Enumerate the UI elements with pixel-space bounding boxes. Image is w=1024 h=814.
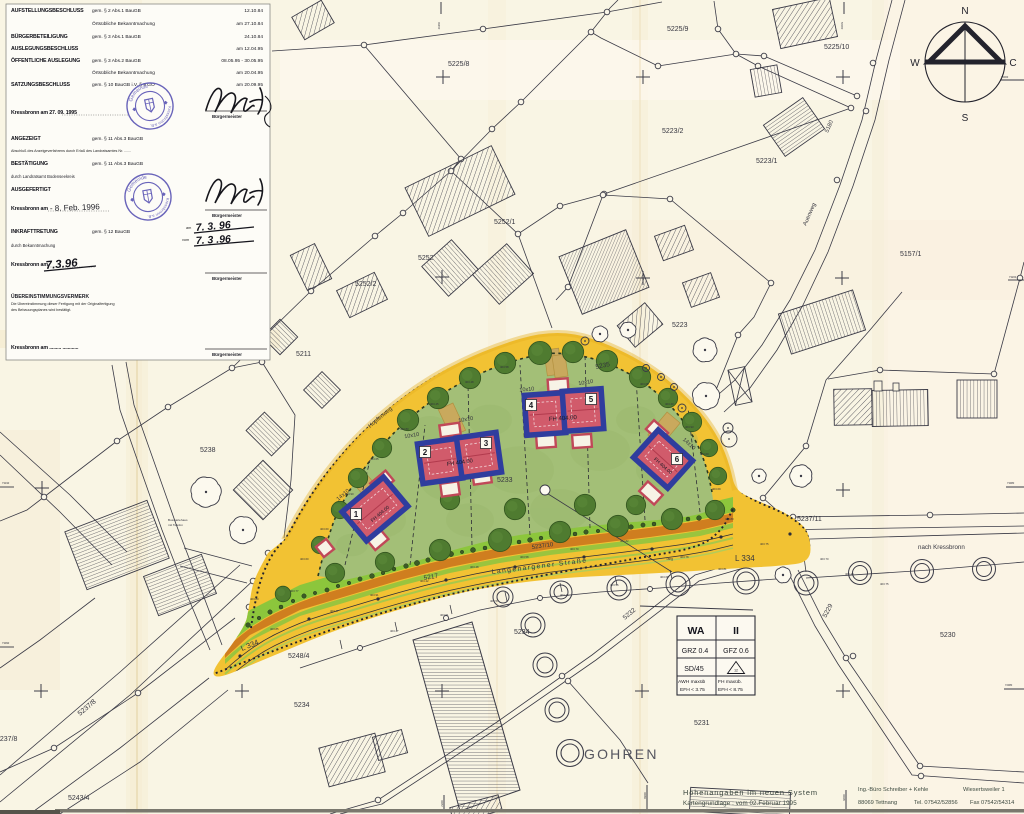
svg-text:N: N <box>961 6 968 17</box>
svg-text:5223/2: 5223/2 <box>662 128 684 135</box>
svg-text:403.82: 403.82 <box>620 539 629 543</box>
svg-text:403.48: 403.48 <box>470 565 479 569</box>
svg-text:Kressbronn am ......... .....: Kressbronn am ......... ............ <box>11 345 79 351</box>
svg-text:403.68: 403.68 <box>660 575 669 579</box>
svg-text:S: S <box>962 113 969 124</box>
svg-text:403.60: 403.60 <box>300 557 309 561</box>
svg-text:AWH maxüb: AWH maxüb <box>678 679 706 685</box>
svg-text:5231: 5231 <box>694 720 710 727</box>
svg-text:Abschluß des Anzeigeverfahrens: Abschluß des Anzeigeverfahrens durch Erl… <box>11 149 131 153</box>
svg-text:AUSLEGUNGSBESCHLUSS: AUSLEGUNGSBESCHLUSS <box>11 46 79 52</box>
svg-text:GOHREN: GOHREN <box>584 746 659 762</box>
svg-text:403.91: 403.91 <box>370 593 379 597</box>
svg-text:5225/10: 5225/10 <box>824 44 849 51</box>
svg-text:403.75: 403.75 <box>760 542 769 546</box>
svg-text:gem. § 11 Abs.3 BauGB: gem. § 11 Abs.3 BauGB <box>92 136 143 142</box>
svg-text:403.40: 403.40 <box>845 572 854 576</box>
svg-text:24.10.84: 24.10.84 <box>244 34 263 40</box>
svg-text:AUFSTELLUNGSBESCHLUSS: AUFSTELLUNGSBESCHLUSS <box>11 8 84 14</box>
svg-text:5252: 5252 <box>418 255 434 262</box>
svg-text:403.93: 403.93 <box>685 425 694 429</box>
svg-text:12: 12 <box>734 669 738 673</box>
svg-text:Kressbronn am: Kressbronn am <box>11 206 48 212</box>
svg-text:GFZ 0.6: GFZ 0.6 <box>723 648 749 655</box>
svg-text:6: 6 <box>675 455 680 464</box>
svg-text:5248/4: 5248/4 <box>288 653 310 660</box>
svg-text:Bürgermeister: Bürgermeister <box>212 213 242 218</box>
svg-text:SATZUNGSBESCHLUSS: SATZUNGSBESCHLUSS <box>11 82 70 88</box>
svg-text:73190: 73190 <box>2 481 10 485</box>
svg-text:403.48: 403.48 <box>465 380 474 384</box>
svg-text:403.42: 403.42 <box>420 579 429 583</box>
svg-text:W: W <box>910 58 920 69</box>
svg-text:Örtsübliche Bekanntmachung: Örtsübliche Bekanntmachung <box>92 20 155 27</box>
svg-text:403.56: 403.56 <box>610 583 619 587</box>
svg-text:5211: 5211 <box>296 351 311 358</box>
svg-text:Ing.-Büro Schreiber + Kehle: Ing.-Büro Schreiber + Kehle <box>858 787 928 793</box>
svg-text:am 12.04.95: am 12.04.95 <box>236 46 263 52</box>
svg-text:403.90: 403.90 <box>345 492 354 496</box>
svg-text:403.77: 403.77 <box>290 589 299 593</box>
svg-text:Bürgermeister: Bürgermeister <box>212 114 242 119</box>
svg-text:00095: 00095 <box>842 794 845 801</box>
svg-text:50000: 50000 <box>840 22 844 30</box>
svg-text:C: C <box>1009 58 1016 69</box>
svg-text:403.80: 403.80 <box>250 597 259 601</box>
svg-text:WA: WA <box>688 625 705 637</box>
svg-text:08.05.95 - 30.05.95: 08.05.95 - 30.05.95 <box>221 58 263 64</box>
svg-text:5225/8: 5225/8 <box>448 61 470 68</box>
svg-text:durch Landratsamt Bodenseekrei: durch Landratsamt Bodenseekreis <box>11 174 75 179</box>
svg-text:- 8. Feb. 1996: - 8. Feb. 1996 <box>50 202 101 213</box>
svg-text:gem. § 3 Abs.2 BauGB: gem. § 3 Abs.2 BauGB <box>92 58 141 64</box>
svg-text:5230: 5230 <box>940 632 956 639</box>
svg-text:5223/1: 5223/1 <box>756 158 778 165</box>
svg-text:des Bebauungsplanes wird bestä: des Bebauungsplanes wird bestätigt. <box>11 308 71 312</box>
svg-text:3: 3 <box>484 439 489 448</box>
svg-text:5238: 5238 <box>200 447 216 454</box>
svg-text:403.80: 403.80 <box>400 427 409 431</box>
svg-text:gem. § 3 Abs.1 BauGB: gem. § 3 Abs.1 BauGB <box>92 34 141 40</box>
svg-text:AUSGEFERTIGT: AUSGEFERTIGT <box>11 187 52 193</box>
svg-text:GRZ 0.4: GRZ 0.4 <box>682 648 709 655</box>
svg-text:1: 1 <box>354 510 359 519</box>
svg-text:BÜRGERBETEILIGUNG: BÜRGERBETEILIGUNG <box>11 33 68 40</box>
svg-text:FH maxüb.: FH maxüb. <box>718 679 742 685</box>
svg-text:5234: 5234 <box>514 629 530 636</box>
svg-text:nach Kressbronn: nach Kressbronn <box>918 544 965 551</box>
svg-text:403.70: 403.70 <box>820 557 829 561</box>
svg-text:Bürgermeister: Bürgermeister <box>212 352 242 357</box>
svg-text:4: 4 <box>529 401 534 410</box>
svg-text:Bürgermeister: Bürgermeister <box>212 276 242 281</box>
svg-text:Tel. 07542/52856: Tel. 07542/52856 <box>914 800 958 806</box>
svg-text:Tang: Tang <box>666 557 673 561</box>
svg-text:Wiesertsweiler 1: Wiesertsweiler 1 <box>963 787 1005 793</box>
svg-text:am: am <box>186 226 191 230</box>
svg-text:403.58: 403.58 <box>520 555 529 559</box>
svg-text:403.57: 403.57 <box>490 599 499 603</box>
svg-text:durch Bekanntmachung: durch Bekanntmachung <box>11 243 56 248</box>
svg-text:5: 5 <box>589 395 594 404</box>
svg-text:403.40: 403.40 <box>665 402 674 406</box>
svg-text:ANGEZEIGT: ANGEZEIGT <box>11 136 41 142</box>
svg-text:72080: 72080 <box>1005 683 1013 687</box>
svg-text:Buswartehaus: Buswartehaus <box>168 518 188 522</box>
svg-text:403.78: 403.78 <box>680 555 689 559</box>
svg-text:Die Übereinstimmung dieser Fer: Die Übereinstimmung dieser Fertigung mit… <box>11 302 115 306</box>
svg-text:73090: 73090 <box>2 641 10 645</box>
svg-text:Höhenangaben im neuen Syste: Höhenangaben im neuen System <box>683 788 818 797</box>
svg-text:2: 2 <box>423 448 428 457</box>
svg-text:73200: 73200 <box>1009 275 1017 279</box>
svg-text:5234: 5234 <box>294 702 310 709</box>
svg-text:403.80: 403.80 <box>725 517 734 521</box>
svg-text:403.65: 403.65 <box>370 457 379 461</box>
svg-text:403.85: 403.85 <box>270 627 279 631</box>
svg-text:5223: 5223 <box>672 322 688 329</box>
svg-text:12.10.84: 12.10.84 <box>244 8 263 14</box>
svg-text:EFH < 8.75: EFH < 8.75 <box>718 687 743 693</box>
svg-text:403.60: 403.60 <box>700 452 709 456</box>
svg-text:Kartengrundlage : vom 02.Febru: Kartengrundlage : vom 02.Februar 1995 <box>683 800 797 807</box>
svg-text:49450: 49450 <box>437 22 441 30</box>
svg-text:ÜBEREINSTIMMUNGSVERMERK: ÜBEREINSTIMMUNGSVERMERK <box>11 293 89 300</box>
svg-text:Fax 07542/54314: Fax 07542/54314 <box>970 800 1014 806</box>
svg-text:5225/9: 5225/9 <box>667 26 689 33</box>
svg-text:am 20.09.95: am 20.09.95 <box>236 82 263 88</box>
svg-text:L 334: L 334 <box>735 554 755 563</box>
svg-text:5252/2: 5252/2 <box>355 281 377 288</box>
svg-text:BESTÄTIGUNG: BESTÄTIGUNG <box>11 160 48 167</box>
svg-text:SD/45: SD/45 <box>684 666 704 673</box>
svg-text:II: II <box>733 625 739 637</box>
svg-text:00089: 00089 <box>643 792 646 799</box>
svg-text:gem. § 2 Abs.1 BauGB: gem. § 2 Abs.1 BauGB <box>92 8 141 14</box>
svg-text:mit Telefon: mit Telefon <box>168 523 183 527</box>
svg-text:88069 Tettnang: 88069 Tettnang <box>858 800 897 806</box>
svg-text:vom: vom <box>182 238 189 242</box>
svg-text:ÖFFENTLICHE AUSLEGUNG: ÖFFENTLICHE AUSLEGUNG <box>11 57 80 64</box>
svg-text:00057: 00057 <box>440 800 443 807</box>
svg-text:403.81: 403.81 <box>718 567 727 571</box>
svg-text:403.75: 403.75 <box>880 582 889 586</box>
svg-text:gem. § 11 Abs.3 BauGB: gem. § 11 Abs.3 BauGB <box>92 161 143 167</box>
svg-text:403.46: 403.46 <box>560 593 569 597</box>
svg-text:403.51: 403.51 <box>440 613 449 617</box>
svg-text:403.69: 403.69 <box>712 487 721 491</box>
svg-text:403.70: 403.70 <box>570 547 579 551</box>
svg-text:403.47: 403.47 <box>330 609 339 613</box>
svg-text:am 27.10.84: am 27.10.84 <box>236 21 263 27</box>
svg-text:Örtsübliche Bekanntmachung: Örtsübliche Bekanntmachung <box>92 69 155 76</box>
svg-text:gem. § 12 BauGB: gem. § 12 BauGB <box>92 229 130 235</box>
svg-text:EFH < 3.75: EFH < 3.75 <box>680 687 705 693</box>
svg-text:INKRAFTTRETUNG: INKRAFTTRETUNG <box>11 229 58 235</box>
svg-text:403.45: 403.45 <box>430 402 439 406</box>
svg-text:5237/8: 5237/8 <box>0 736 18 743</box>
svg-text:5243/4: 5243/4 <box>68 795 90 802</box>
svg-text:Kressbronn am: Kressbronn am <box>11 262 48 268</box>
svg-text:73080: 73080 <box>1007 481 1015 485</box>
svg-text:403.58: 403.58 <box>500 365 509 369</box>
svg-text:5252/1: 5252/1 <box>494 219 516 226</box>
svg-text:403.60: 403.60 <box>320 527 329 531</box>
svg-text:5233: 5233 <box>497 477 513 484</box>
svg-text:403.47: 403.47 <box>390 629 399 633</box>
svg-text:5157/1: 5157/1 <box>900 251 922 258</box>
svg-text:5237/11: 5237/11 <box>797 516 822 523</box>
svg-text:403.65: 403.65 <box>640 382 649 386</box>
svg-text:am 20.04.95: am 20.04.95 <box>236 70 263 76</box>
